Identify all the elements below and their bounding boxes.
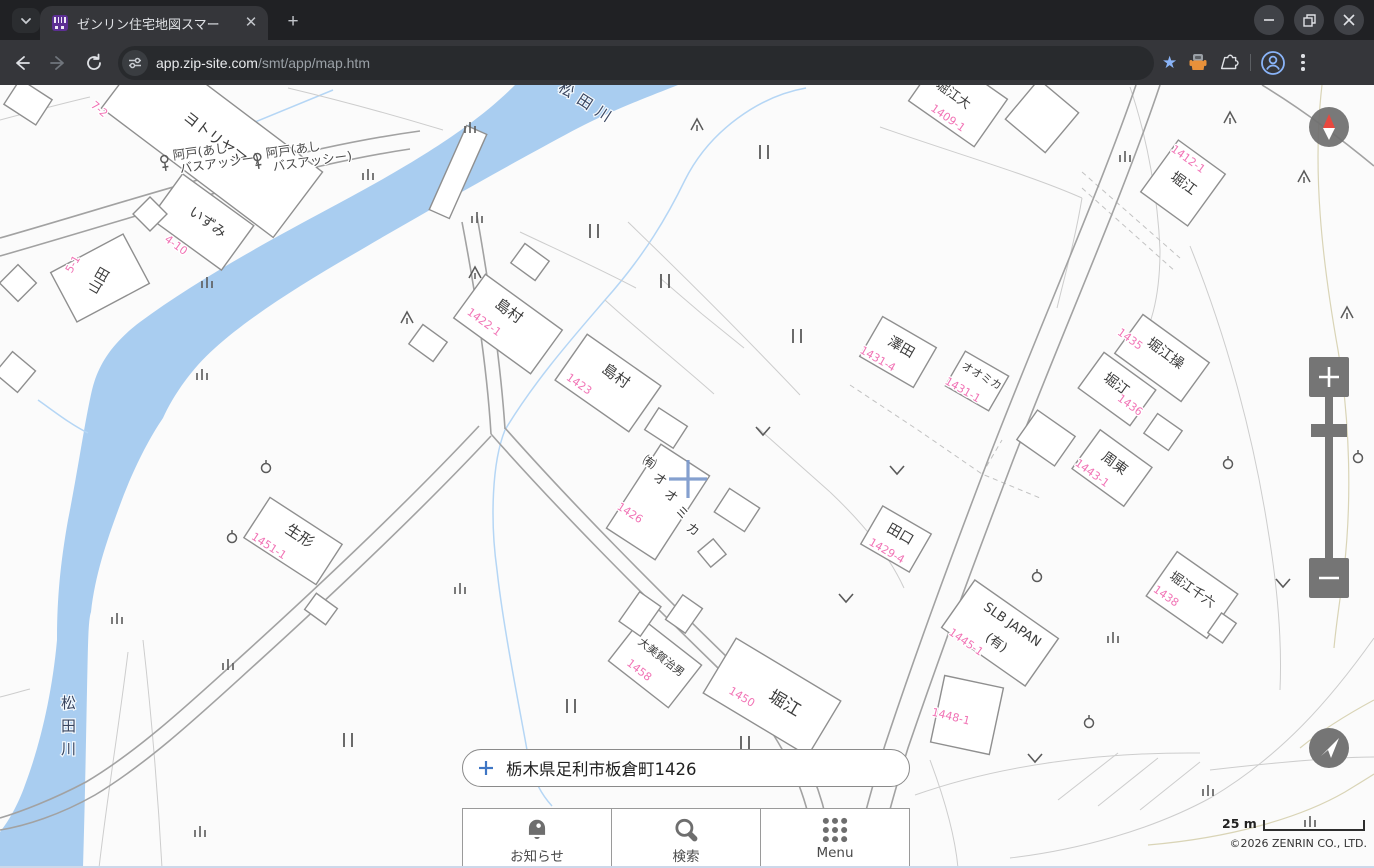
field-symbol-icon bbox=[472, 212, 482, 223]
river-label: 松 bbox=[61, 694, 83, 712]
browser-toolbar: app.zip-site.com/smt/app/map.htm ★ bbox=[0, 40, 1374, 85]
toolbar-right-icons: ★ bbox=[1162, 50, 1311, 76]
url-text[interactable]: app.zip-site.com/smt/app/map.htm bbox=[156, 55, 370, 71]
building-outline bbox=[714, 488, 759, 531]
nav-label: 検索 bbox=[673, 845, 700, 865]
field-symbol-icon bbox=[112, 613, 122, 624]
compass-button[interactable] bbox=[1309, 107, 1349, 147]
pole-symbol-icon bbox=[262, 460, 271, 473]
bell-icon bbox=[523, 816, 551, 844]
copyright-text: ©2026 ZENRIN CO., LTD. bbox=[1230, 837, 1368, 850]
new-tab-button[interactable]: + bbox=[280, 9, 306, 35]
nav-item-notifications[interactable]: お知らせ bbox=[463, 809, 611, 868]
paddy-symbol-icon bbox=[760, 145, 768, 159]
pole-symbol-icon bbox=[1033, 569, 1042, 582]
locate-button[interactable] bbox=[1309, 728, 1349, 768]
url-bar[interactable]: app.zip-site.com/smt/app/map.htm bbox=[118, 46, 1154, 80]
vee-symbol-icon bbox=[1028, 754, 1042, 762]
vee-symbol-icon bbox=[756, 427, 770, 435]
address-text[interactable]: 栃木県足利市板倉町1426 bbox=[506, 756, 697, 780]
map-viewport[interactable]: ヨトリヤマ7-2いずみ4-10山田5-1島村1422-1島村1423㈲オオミカ1… bbox=[0, 85, 1374, 868]
field-symbol-icon bbox=[1203, 785, 1213, 796]
browser-window: ゼンリン住宅地図スマー ✕ + app.zip-site.com/smt/app… bbox=[0, 0, 1374, 868]
building-outline bbox=[409, 324, 447, 361]
pole-symbol-icon bbox=[228, 530, 237, 543]
river-label: 田 bbox=[61, 717, 83, 735]
field-symbol-icon bbox=[1120, 151, 1130, 162]
building-outline bbox=[305, 593, 338, 624]
extensions-puzzle-icon[interactable] bbox=[1219, 52, 1241, 74]
bookmark-star-icon[interactable]: ★ bbox=[1162, 53, 1177, 73]
browser-menu-kebab-icon[interactable] bbox=[1295, 54, 1311, 71]
building-outline bbox=[1017, 410, 1075, 466]
pole-symbol-icon bbox=[1224, 456, 1233, 469]
window-controls bbox=[1254, 5, 1364, 35]
field-symbol-icon bbox=[363, 169, 373, 180]
nav-label: お知らせ bbox=[510, 845, 564, 865]
bus-stop-icon bbox=[160, 155, 169, 171]
building-outline bbox=[4, 85, 52, 125]
building-label: カ bbox=[683, 520, 702, 540]
close-window-button[interactable] bbox=[1334, 5, 1364, 35]
building-outline bbox=[511, 243, 549, 280]
field-symbol-icon bbox=[197, 369, 207, 380]
forward-button[interactable] bbox=[44, 49, 72, 77]
zenrin-favicon-icon bbox=[52, 15, 68, 31]
chevron-down-icon bbox=[19, 14, 33, 28]
zoom-slider-track[interactable] bbox=[1325, 397, 1333, 558]
building-outline bbox=[1005, 85, 1078, 153]
add-location-plus-icon bbox=[477, 759, 495, 777]
conifer-symbol-icon bbox=[401, 312, 413, 324]
building-outline bbox=[698, 539, 726, 567]
building-outline bbox=[0, 352, 35, 393]
pole-symbol-icon bbox=[1085, 715, 1094, 728]
conifer-symbol-icon bbox=[691, 119, 703, 131]
bottom-nav-bar: お知らせ 検索 Menu bbox=[462, 808, 910, 868]
field-symbol-icon bbox=[455, 583, 465, 594]
zoom-out-button[interactable] bbox=[1309, 558, 1349, 598]
conifer-symbol-icon bbox=[1224, 112, 1236, 124]
paddy-symbol-icon bbox=[590, 224, 598, 238]
extension-robot-icon[interactable] bbox=[1186, 51, 1210, 75]
zoom-slider-handle[interactable] bbox=[1311, 424, 1347, 437]
toolbar-divider bbox=[1250, 54, 1251, 71]
zoom-in-button[interactable] bbox=[1309, 357, 1349, 397]
conifer-symbol-icon bbox=[1298, 171, 1310, 183]
paddy-symbol-icon bbox=[661, 274, 669, 288]
paddy-symbol-icon bbox=[793, 329, 801, 343]
scale-label: 25 m bbox=[1222, 816, 1257, 831]
conifer-symbol-icon bbox=[1341, 307, 1353, 319]
tab-list-chevron-button[interactable] bbox=[12, 8, 40, 33]
field-symbol-icon bbox=[1108, 632, 1118, 643]
nav-item-menu[interactable]: Menu bbox=[760, 809, 909, 868]
building-outline bbox=[454, 274, 563, 374]
building-outline bbox=[645, 408, 688, 448]
field-symbol-icon bbox=[195, 826, 205, 837]
vee-symbol-icon bbox=[890, 466, 904, 474]
building-outline bbox=[1144, 414, 1182, 451]
pole-symbol-icon bbox=[1354, 450, 1363, 463]
paddy-symbol-icon bbox=[344, 733, 352, 747]
minimize-button[interactable] bbox=[1254, 5, 1284, 35]
tab-title: ゼンリン住宅地図スマー bbox=[77, 14, 235, 33]
tab-close-icon[interactable]: ✕ bbox=[242, 14, 260, 32]
paddy-symbol-icon bbox=[567, 699, 575, 713]
browser-tab[interactable]: ゼンリン住宅地図スマー ✕ bbox=[40, 6, 268, 40]
address-search-pill[interactable]: 栃木県足利市板倉町1426 bbox=[462, 749, 910, 787]
paddy-symbol-icon bbox=[741, 736, 749, 750]
map-scale: 25 m bbox=[1222, 816, 1365, 831]
profile-avatar[interactable] bbox=[1260, 50, 1286, 76]
scale-bar bbox=[1263, 820, 1365, 831]
river-label: 川 bbox=[61, 740, 83, 758]
menu-grid-icon bbox=[821, 816, 849, 844]
zoom-control bbox=[1309, 357, 1349, 598]
map-symbols-layer bbox=[112, 112, 1363, 837]
building-outline bbox=[608, 618, 701, 707]
vee-symbol-icon bbox=[1276, 579, 1290, 587]
vee-symbol-icon bbox=[839, 594, 853, 602]
search-icon bbox=[672, 816, 700, 844]
site-info-icon[interactable] bbox=[122, 50, 148, 76]
nav-label: Menu bbox=[816, 845, 853, 861]
building-outline bbox=[0, 265, 36, 302]
back-button[interactable] bbox=[8, 49, 36, 77]
reload-button[interactable] bbox=[80, 49, 108, 77]
restore-button[interactable] bbox=[1294, 5, 1324, 35]
browser-tab-strip: ゼンリン住宅地図スマー ✕ + bbox=[0, 0, 1374, 40]
nav-item-search[interactable]: 検索 bbox=[611, 809, 760, 868]
